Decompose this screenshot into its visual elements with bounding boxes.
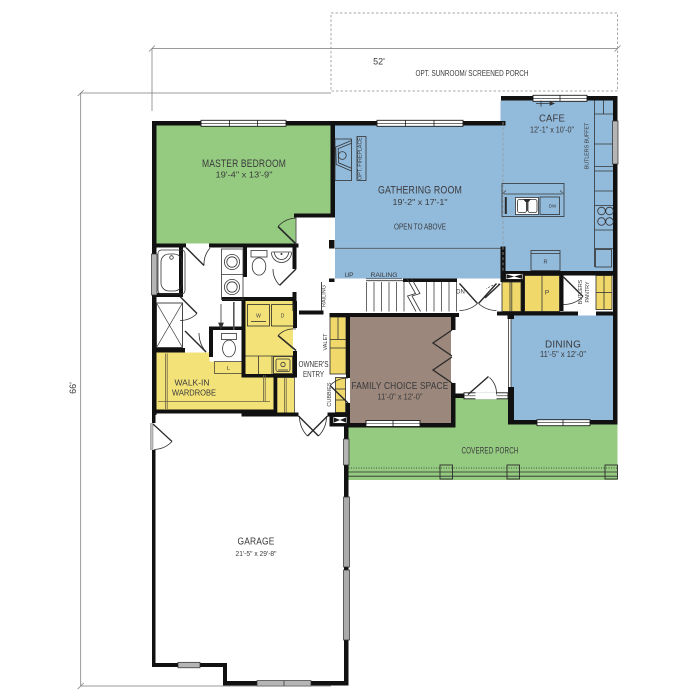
svg-text:21'-5" x 29'-8": 21'-5" x 29'-8" (236, 549, 277, 558)
svg-text:OWNER'S: OWNER'S (299, 360, 329, 369)
svg-text:WARDROBE: WARDROBE (172, 388, 216, 398)
svg-text:OPEN TO ABOVE: OPEN TO ABOVE (394, 223, 446, 232)
svg-text:MASTER BEDROOM: MASTER BEDROOM (202, 158, 286, 170)
svg-text:RAILING: RAILING (322, 285, 328, 307)
svg-text:W: W (256, 314, 261, 320)
svg-text:WALK-IN: WALK-IN (175, 378, 210, 388)
svg-text:UP: UP (344, 272, 353, 279)
svg-text:BUTLERS BUFFET: BUTLERS BUFFET (585, 122, 591, 169)
svg-text:OPT. FIREPLACE: OPT. FIREPLACE (358, 137, 364, 180)
svg-text:GATHERING ROOM: GATHERING ROOM (378, 185, 462, 197)
svg-text:PANTRY: PANTRY (585, 281, 591, 302)
svg-text:DW: DW (549, 204, 557, 209)
svg-text:VALET: VALET (323, 333, 329, 351)
svg-text:P: P (545, 290, 549, 297)
svg-text:11'-5" x 12'-0": 11'-5" x 12'-0" (540, 350, 586, 359)
svg-text:R: R (544, 260, 548, 266)
svg-text:CAFE: CAFE (539, 114, 565, 125)
svg-text:DINING: DINING (545, 340, 581, 351)
svg-text:52': 52' (373, 57, 385, 67)
svg-text:19'-4" x 13'-9": 19'-4" x 13'-9" (216, 170, 273, 180)
svg-text:12'-1" x 10'-0": 12'-1" x 10'-0" (530, 126, 574, 135)
svg-text:GARAGE: GARAGE (238, 536, 275, 548)
svg-text:D: D (281, 314, 285, 320)
svg-text:FAMILY CHOICE SPACE: FAMILY CHOICE SPACE (352, 380, 449, 392)
svg-text:COVERED PORCH: COVERED PORCH (462, 446, 519, 457)
svg-text:RAILING: RAILING (371, 272, 398, 279)
svg-text:BUTLERS: BUTLERS (578, 279, 584, 304)
svg-text:ENTRY: ENTRY (303, 370, 325, 379)
svg-text:19'-2" x 17'-1": 19'-2" x 17'-1" (393, 197, 448, 207)
svg-text:DN: DN (456, 290, 465, 296)
svg-text:CUBBIES: CUBBIES (327, 382, 333, 406)
svg-text:11'-0" x 12'-0": 11'-0" x 12'-0" (378, 393, 423, 402)
svg-text:66': 66' (68, 382, 78, 394)
svg-text:OPT. SUNROOM/ SCREENED PORCH: OPT. SUNROOM/ SCREENED PORCH (416, 69, 529, 78)
svg-text:L: L (227, 366, 230, 372)
